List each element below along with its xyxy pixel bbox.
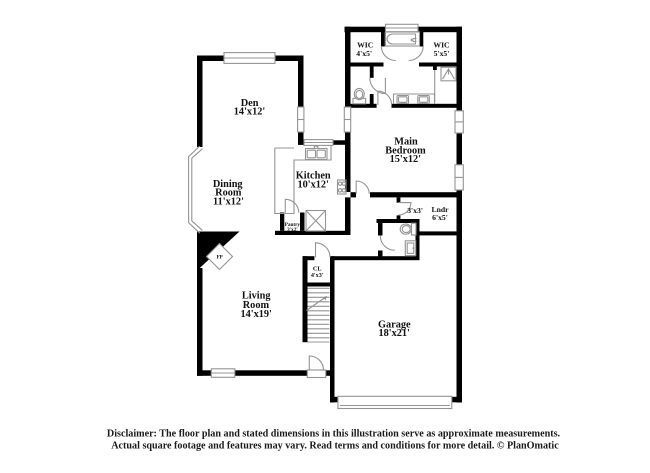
svg-text:11'x12': 11'x12' — [213, 197, 244, 208]
svg-text:4'x5': 4'x5' — [356, 49, 372, 58]
svg-text:4'x3': 4'x3' — [311, 272, 324, 279]
svg-text:14'x19': 14'x19' — [240, 309, 272, 320]
svg-text:Disclaimer: The floor plan and: Disclaimer: The floor plan and stated di… — [107, 428, 561, 439]
svg-text:18'x21': 18'x21' — [378, 328, 410, 339]
svg-text:14'x12': 14'x12' — [234, 107, 266, 118]
svg-text:5'x5': 5'x5' — [434, 49, 450, 58]
svg-text:Actual square footage and feat: Actual square footage and features may v… — [111, 441, 559, 452]
svg-text:FP: FP — [217, 255, 224, 261]
svg-text:3'x2': 3'x2' — [287, 227, 298, 233]
svg-text:15'x12': 15'x12' — [390, 154, 422, 165]
svg-text:6'x5': 6'x5' — [432, 213, 448, 222]
svg-text:10'x12': 10'x12' — [297, 180, 329, 191]
svg-text:3'x3': 3'x3' — [407, 206, 423, 215]
